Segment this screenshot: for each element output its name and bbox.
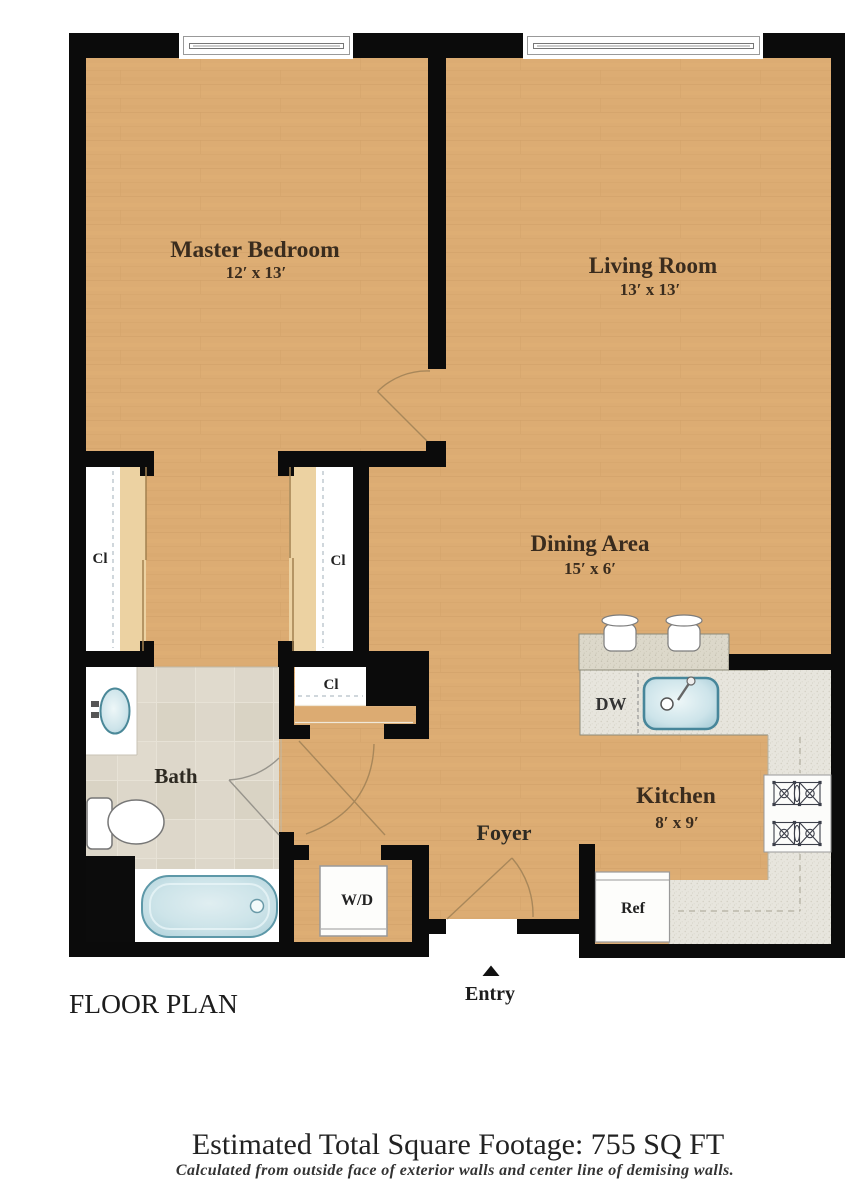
svg-text:12′ x 13′: 12′ x 13′ [226,263,287,282]
svg-text:8′ x 9′: 8′ x 9′ [655,813,699,832]
svg-text:13′ x 13′: 13′ x 13′ [620,280,681,299]
svg-text:Dining Area: Dining Area [530,531,650,556]
svg-text:Foyer: Foyer [477,820,532,845]
svg-text:Living Room: Living Room [589,253,717,278]
svg-text:FLOOR PLAN: FLOOR PLAN [69,988,238,1019]
svg-text:Master Bedroom: Master Bedroom [170,237,340,263]
svg-text:Calculated from outside face o: Calculated from outside face of exterior… [176,1162,734,1179]
svg-text:Kitchen: Kitchen [636,783,716,809]
svg-text:Entry: Entry [465,983,515,1005]
svg-text:Bath: Bath [154,764,198,788]
svg-text:Estimated Total Square Footage: Estimated Total Square Footage: 755 SQ F… [192,1128,724,1161]
svg-text:W/D: W/D [341,892,373,909]
svg-text:Cl: Cl [324,677,339,693]
svg-text:Cl: Cl [93,551,108,567]
svg-text:DW: DW [596,694,627,714]
svg-text:Cl: Cl [331,553,346,569]
svg-text:Ref: Ref [621,900,646,917]
svg-text:15′ x 6′: 15′ x 6′ [564,559,616,578]
